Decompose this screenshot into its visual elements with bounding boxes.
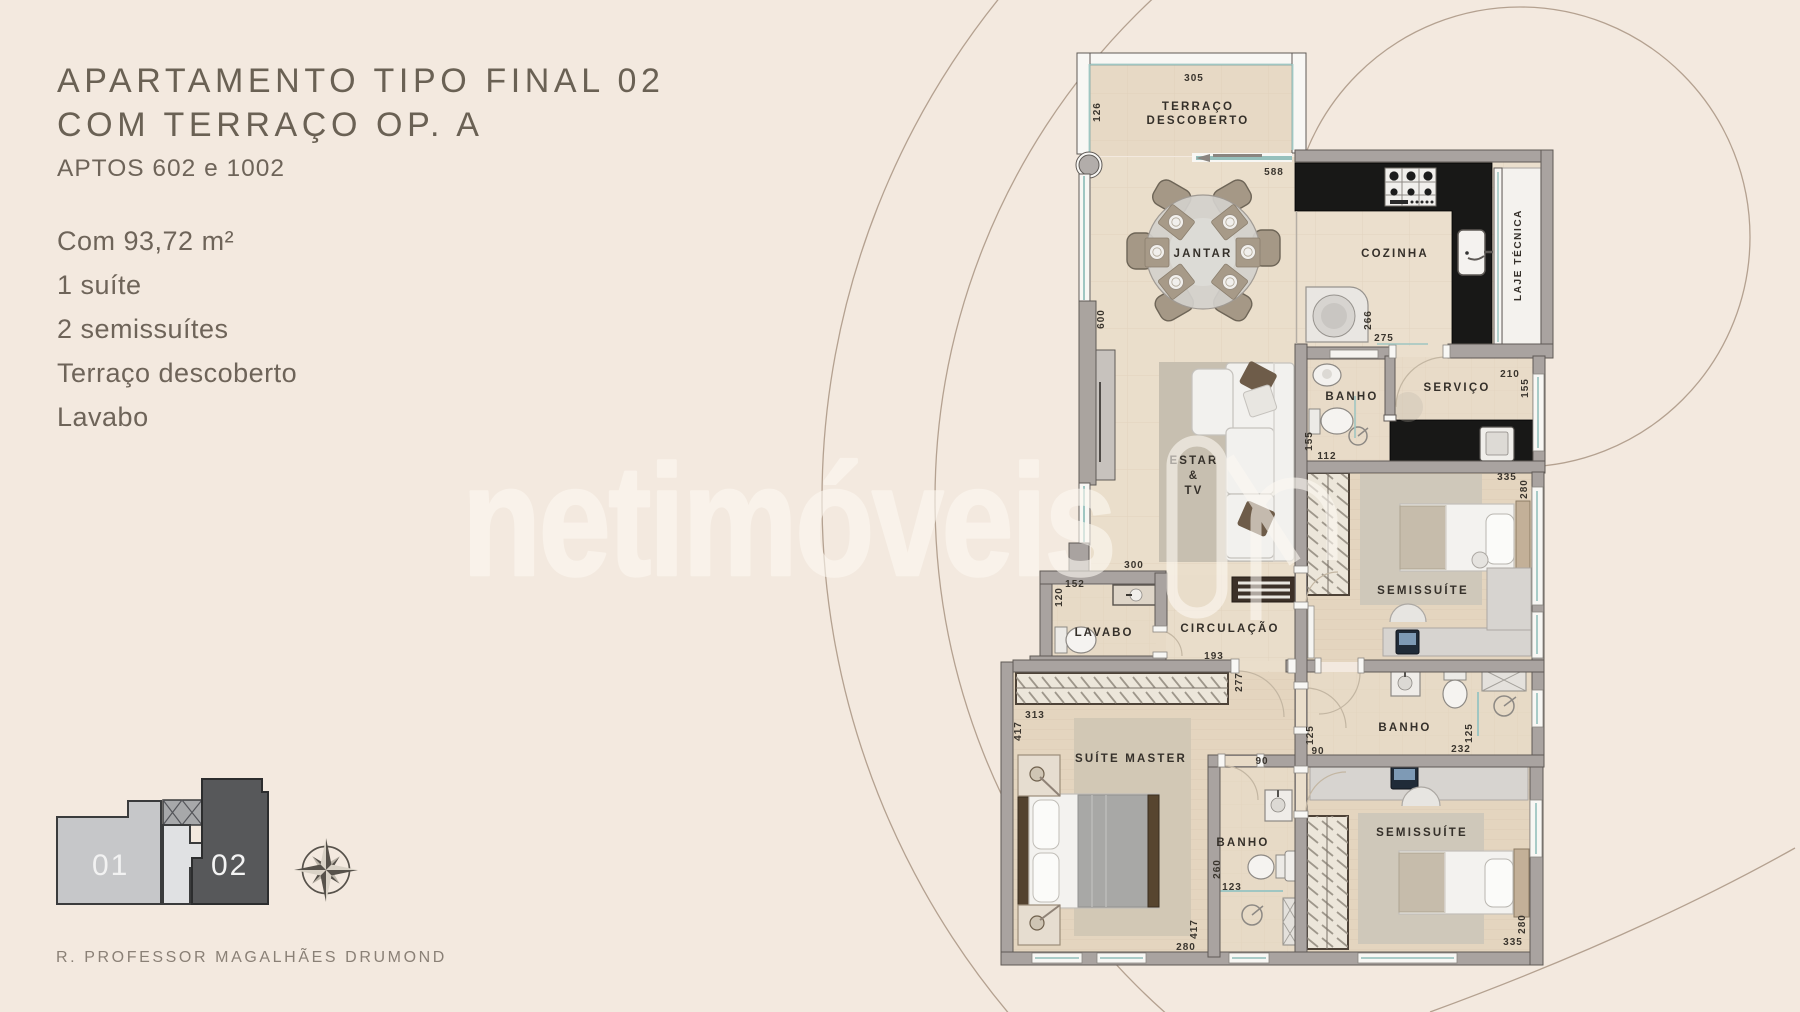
svg-text:SERVIÇO: SERVIÇO	[1424, 382, 1491, 394]
svg-text:126: 126	[1092, 102, 1103, 122]
svg-text:&: &	[1189, 470, 1200, 482]
svg-text:90: 90	[1311, 746, 1324, 757]
svg-text:90: 90	[1255, 756, 1268, 767]
svg-text:275: 275	[1374, 333, 1394, 344]
svg-text:LAVABO: LAVABO	[1075, 627, 1134, 639]
svg-text:277: 277	[1234, 672, 1245, 692]
svg-text:SEMISSUÍTE: SEMISSUÍTE	[1377, 584, 1469, 597]
svg-text:313: 313	[1025, 710, 1045, 721]
svg-text:280: 280	[1517, 914, 1528, 934]
svg-text:SEMISSUÍTE: SEMISSUÍTE	[1376, 826, 1468, 839]
svg-text:Terraço descoberto: Terraço descoberto	[57, 358, 297, 388]
svg-text:193: 193	[1204, 651, 1224, 662]
svg-text:JANTAR: JANTAR	[1174, 248, 1233, 260]
svg-text:APARTAMENTO TIPO FINAL 02: APARTAMENTO TIPO FINAL 02	[57, 62, 665, 100]
svg-text:BANHO: BANHO	[1378, 722, 1431, 734]
svg-text:417: 417	[1013, 721, 1024, 741]
svg-text:305: 305	[1184, 73, 1204, 84]
svg-text:Lavabo: Lavabo	[57, 402, 149, 432]
svg-text:600: 600	[1096, 309, 1107, 329]
svg-text:335: 335	[1497, 472, 1517, 483]
svg-text:125: 125	[1305, 725, 1316, 745]
svg-text:123: 123	[1222, 882, 1242, 893]
svg-text:02: 02	[211, 849, 248, 882]
svg-text:netimóveis: netimóveis	[462, 432, 1114, 609]
svg-text:300: 300	[1124, 560, 1144, 571]
svg-text:APTOS 602 e 1002: APTOS 602 e 1002	[57, 155, 285, 182]
svg-text:112: 112	[1317, 451, 1336, 462]
svg-text:CIRCULAÇÃO: CIRCULAÇÃO	[1180, 622, 1279, 635]
svg-text:210: 210	[1500, 369, 1520, 380]
svg-text:BANHO: BANHO	[1216, 837, 1269, 849]
svg-text:1 suíte: 1 suíte	[57, 270, 142, 300]
svg-text:125: 125	[1464, 723, 1475, 743]
svg-text:COM TERRAÇO OP. A: COM TERRAÇO OP. A	[57, 106, 483, 144]
svg-text:2 semissuítes: 2 semissuítes	[57, 314, 229, 344]
svg-text:280: 280	[1176, 942, 1196, 953]
svg-text:TERRAÇO: TERRAÇO	[1162, 101, 1234, 113]
svg-text:LAJE TÉCNICA: LAJE TÉCNICA	[1511, 209, 1524, 301]
svg-text:260: 260	[1212, 859, 1223, 879]
svg-text:417: 417	[1189, 919, 1200, 939]
svg-text:COZINHA: COZINHA	[1361, 248, 1429, 260]
svg-text:BANHO: BANHO	[1325, 391, 1378, 403]
svg-text:280: 280	[1519, 479, 1530, 499]
svg-text:588: 588	[1264, 167, 1284, 178]
svg-text:TV: TV	[1184, 485, 1203, 497]
svg-text:Com 93,72 m²: Com 93,72 m²	[57, 226, 234, 256]
svg-text:01: 01	[92, 849, 129, 882]
svg-text:335: 335	[1503, 937, 1523, 948]
svg-text:SUÍTE MASTER: SUÍTE MASTER	[1075, 752, 1187, 765]
svg-text:DESCOBERTO: DESCOBERTO	[1147, 115, 1250, 127]
svg-text:155: 155	[1304, 431, 1315, 451]
svg-text:155: 155	[1520, 378, 1531, 398]
svg-text:232: 232	[1451, 744, 1471, 755]
svg-text:R. PROFESSOR MAGALHÃES DRUMOND: R. PROFESSOR MAGALHÃES DRUMOND	[56, 946, 447, 966]
svg-text:266: 266	[1363, 310, 1374, 330]
